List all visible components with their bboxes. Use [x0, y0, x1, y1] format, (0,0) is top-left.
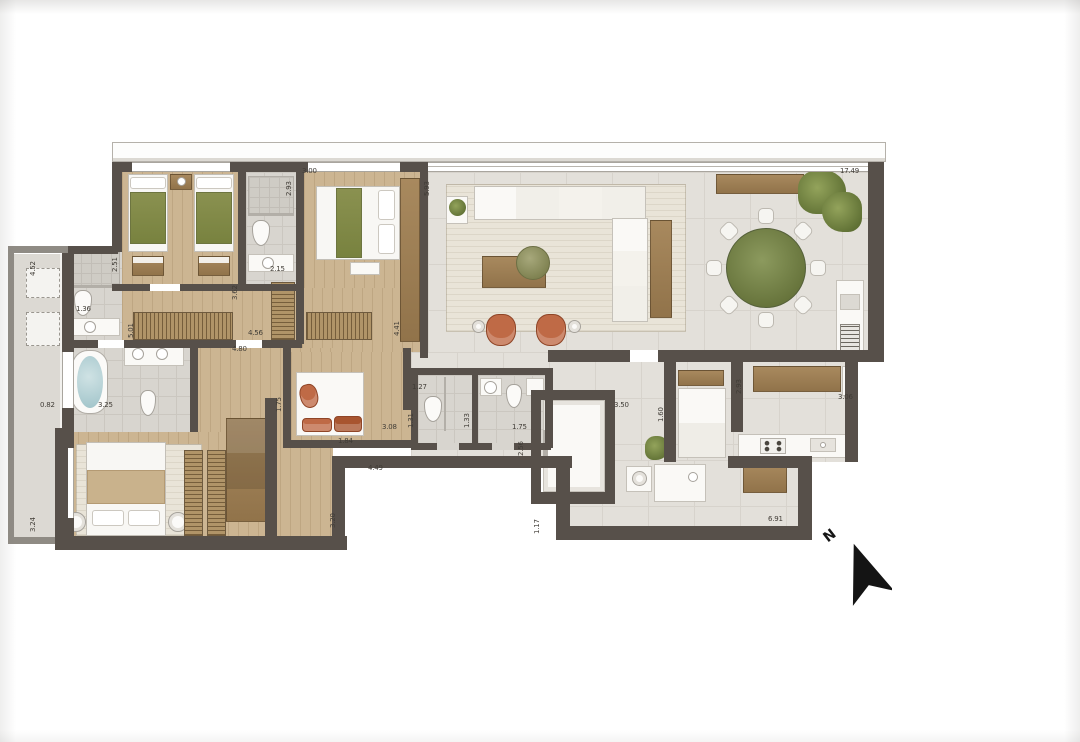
wall-void-left	[332, 456, 345, 546]
top-terrace-parapet	[112, 142, 886, 162]
dimension-label: 6.91	[768, 516, 783, 523]
wardrobe-bedroom2	[400, 178, 420, 342]
dimension-label: 5.01	[128, 323, 135, 338]
dimension-label: 2.93	[286, 181, 293, 196]
king-bed-blanket	[87, 470, 165, 504]
dining-chair-5	[706, 260, 722, 276]
round-pouf	[516, 246, 550, 280]
dimension-label: 3.25	[98, 402, 113, 409]
single-bed-1-cover	[130, 192, 166, 244]
dimension-label: 1.17	[534, 519, 541, 534]
wall-bathblock-left	[411, 368, 418, 448]
void-cutout	[345, 468, 557, 545]
wall-bathblock-bottom	[411, 443, 551, 450]
bath4-basin	[484, 381, 497, 394]
side-table-plant	[449, 199, 466, 216]
dimension-label: 1.75	[276, 397, 283, 412]
dimension-label: 4.52	[30, 261, 37, 276]
dimension-label: 1.36	[76, 306, 91, 313]
dimension-label: 3.20	[330, 513, 337, 528]
floor-plan: N 4.520.823.242.511.363.251.752.933.002.…	[0, 0, 1080, 742]
wall-bath1-bed2	[296, 172, 304, 344]
wall-masterbath-right	[190, 342, 198, 432]
dimension-label: 2.56	[518, 441, 525, 456]
door-opening-hall	[630, 350, 658, 362]
dimension-label: 1.84	[338, 438, 353, 445]
wall-service-right	[798, 458, 812, 540]
service-counter	[654, 464, 706, 502]
dimension-label: 3.06	[838, 394, 853, 401]
double-bed-runner	[336, 188, 362, 258]
dimension-label: 4.49	[368, 465, 383, 472]
wall-dining-south	[548, 350, 858, 362]
pantry-cabinet	[678, 388, 726, 458]
window-twin-bedroom	[132, 162, 230, 172]
wall-kitchen-left	[731, 362, 743, 432]
master-closet-rack-2	[207, 450, 226, 536]
armchair-1	[486, 314, 516, 346]
wall-kitchen-bottom	[728, 456, 812, 468]
armchair-side-table-1	[472, 320, 485, 333]
dimension-label: 1.27	[412, 384, 427, 391]
single-bed-2-cover	[196, 192, 232, 244]
island-sink-drain	[820, 442, 826, 448]
dimension-label: 3.24	[30, 517, 37, 532]
dimension-label: 3.50	[614, 402, 629, 409]
double-bed-pillow-1	[378, 190, 395, 220]
sideboard	[716, 174, 804, 194]
sofa-sectional-top	[474, 186, 646, 220]
wall-bathblock-right	[545, 368, 553, 448]
washing-machine-door	[632, 471, 647, 486]
north-arrow-icon	[828, 536, 892, 608]
bbq-sink	[840, 294, 860, 310]
wall-hall-kitchen	[664, 362, 676, 462]
wall-left-top	[112, 162, 122, 252]
dimension-label: 4.56	[248, 330, 263, 337]
dimension-label: 2.93	[736, 379, 743, 394]
dimension-label: 1.60	[658, 407, 665, 422]
dimension-label: 0.82	[40, 402, 55, 409]
bed-end-bench	[350, 262, 380, 275]
wall-office-right	[403, 348, 411, 410]
window-master-bath	[62, 352, 74, 408]
closet-bedroom2	[306, 312, 372, 340]
wall-elevator-bottom	[531, 492, 615, 504]
wall-balcony-outer	[8, 250, 14, 542]
ac-unit-2	[26, 312, 60, 346]
door-opening-suite	[98, 340, 124, 348]
dining-table	[726, 228, 806, 308]
wall-bottom-service	[556, 526, 812, 540]
corner-plant-b	[822, 192, 862, 232]
master-basin-2	[156, 348, 168, 360]
shower-1-glass	[248, 214, 294, 216]
king-bed-pillow-2	[128, 510, 160, 526]
bench-1	[132, 256, 164, 276]
bench-2	[198, 256, 230, 276]
office-cushion-3	[334, 416, 362, 432]
door-opening-bath3	[437, 443, 459, 450]
dining-chair-1	[810, 260, 826, 276]
dining-chair-7	[758, 208, 774, 224]
wall-kitchen-right	[845, 350, 858, 462]
double-bed-pillow-2	[378, 224, 395, 254]
master-closet-rack-1	[184, 450, 203, 536]
wall-master-right	[265, 398, 277, 538]
bath3-glass	[444, 377, 446, 431]
wall-office-left	[283, 348, 291, 448]
dimension-label: 17.49	[840, 168, 859, 175]
door-opening-twin	[150, 284, 180, 291]
dining-chair-3	[758, 312, 774, 328]
dimension-label: 4.80	[232, 346, 247, 353]
wall-twin-bath1	[238, 172, 246, 288]
armchair-2	[536, 314, 566, 346]
wall-left-master	[55, 428, 68, 538]
window-bedroom-2	[308, 162, 400, 172]
wall-elevator-top	[531, 390, 615, 400]
kitchen-island	[738, 434, 858, 458]
console-right	[650, 220, 672, 318]
wall-bath-divider	[472, 375, 478, 447]
north-arrow: N	[828, 536, 892, 608]
dimension-label: 1.75	[512, 424, 527, 431]
dimension-label: 1.33	[464, 413, 471, 428]
dimension-label: 5.93	[424, 181, 431, 196]
wall-bathblock-top	[411, 368, 551, 375]
single-bed-1-pillow	[130, 177, 166, 189]
pantry-shelf	[678, 370, 724, 386]
wall-elevator-left	[531, 390, 541, 504]
dimension-label: 3.00	[302, 168, 317, 175]
single-bed-2-pillow	[196, 177, 232, 189]
wall-right	[868, 162, 884, 362]
corridor-wardrobe-left	[133, 312, 233, 340]
lamp-icon	[177, 177, 186, 186]
service-sink	[688, 472, 698, 482]
dimension-label: 2.51	[112, 257, 119, 272]
vanity-2-basin	[84, 321, 96, 333]
vanity-2	[72, 318, 120, 336]
dimension-label: 4.41	[394, 321, 401, 336]
sofa-sectional-right	[612, 218, 648, 322]
armchair-side-table-2	[568, 320, 581, 333]
glass-wall-living	[428, 162, 870, 172]
master-basin-1	[132, 348, 144, 360]
wall-corridor-top	[112, 284, 304, 291]
bbq-grill-icon	[840, 324, 860, 352]
cooktop-icon	[760, 438, 786, 454]
office-cushion-2	[302, 418, 332, 432]
wall-bed2-living	[420, 172, 428, 358]
dimension-label: 3.62	[232, 285, 239, 300]
king-bed-pillow-1	[92, 510, 124, 526]
dimension-label: 3.08	[382, 424, 397, 431]
dimension-label: 1.31	[408, 413, 415, 428]
wall-bottom-master	[55, 536, 347, 550]
kitchen-counter	[753, 366, 841, 392]
door-opening-bath4	[492, 443, 514, 450]
dimension-label: 2.15	[270, 266, 285, 273]
wall-balcony-top	[8, 246, 68, 253]
